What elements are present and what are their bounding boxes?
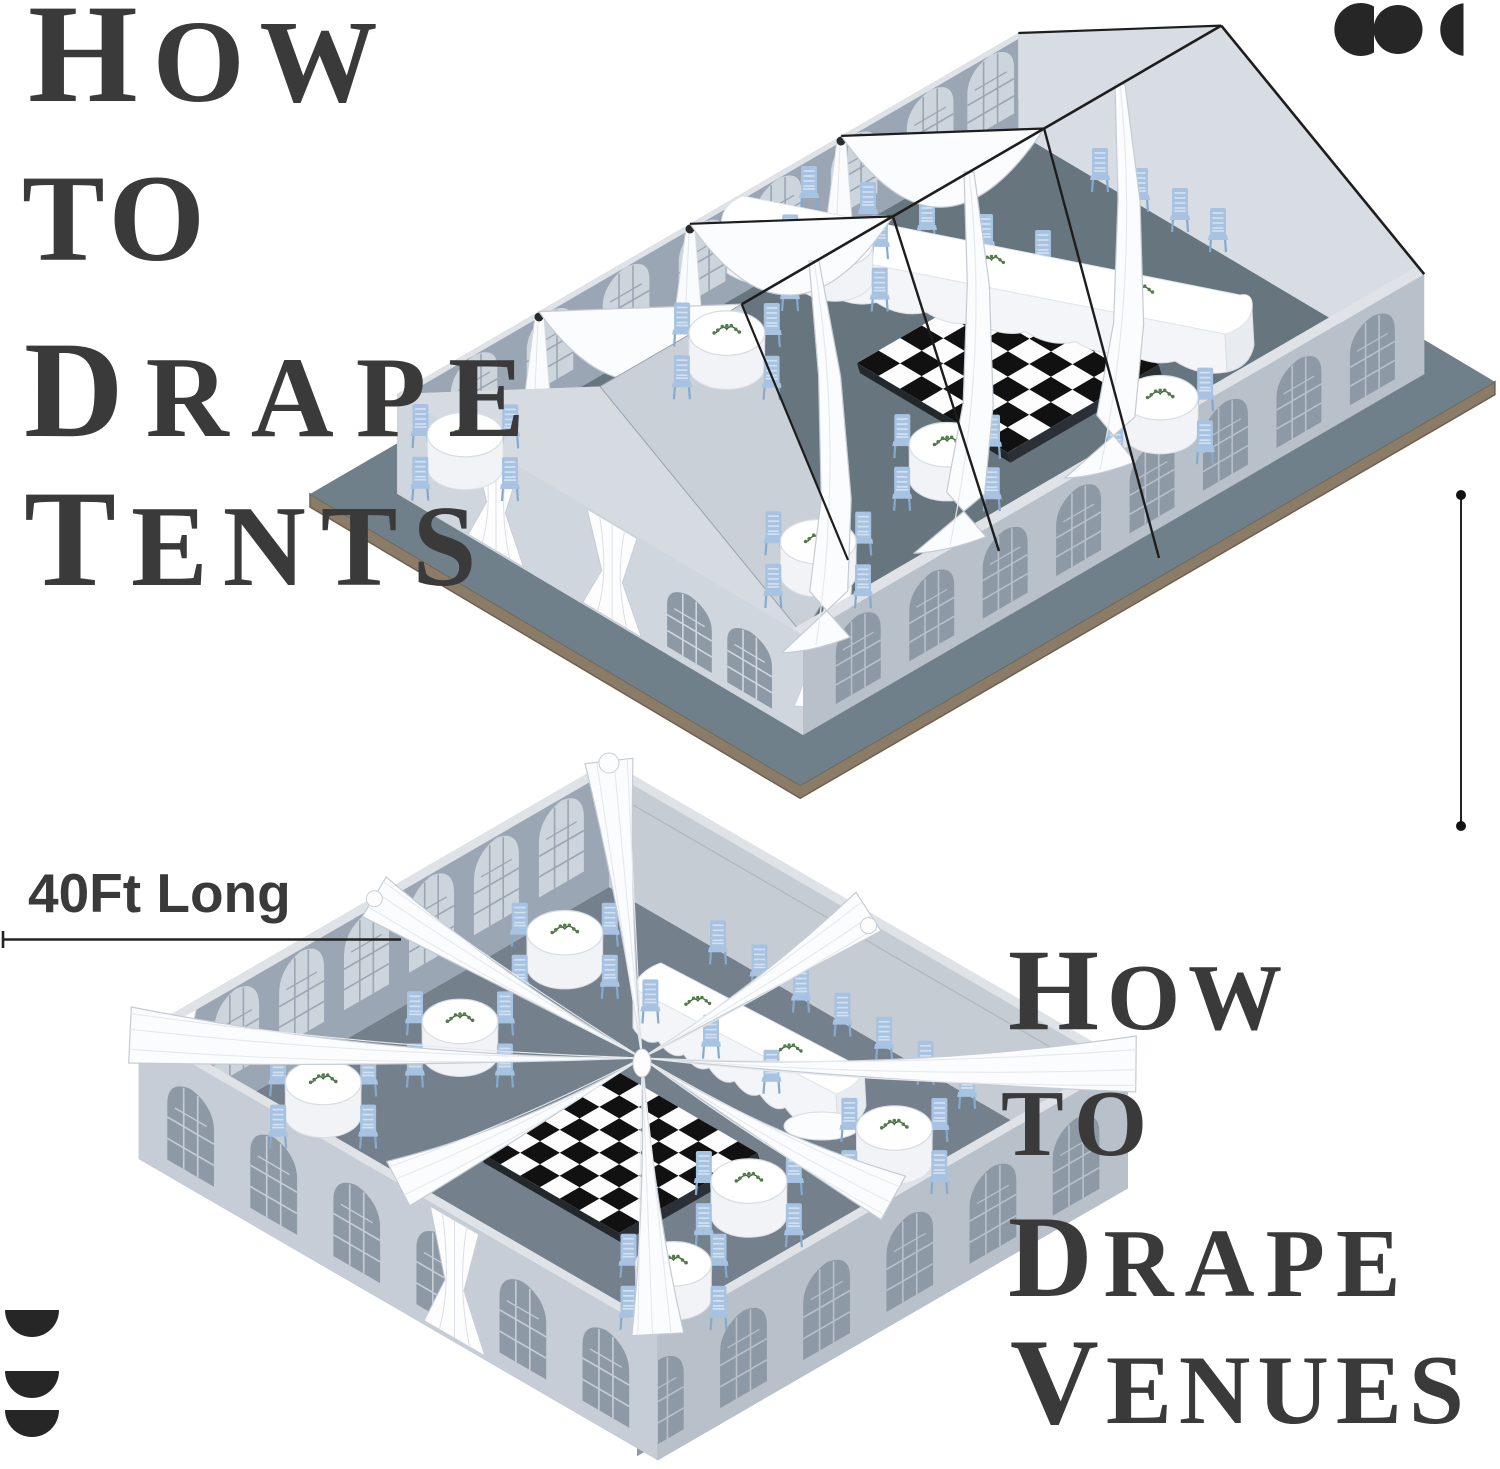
svg-text:40Ft Long: 40Ft Long <box>28 862 291 924</box>
svg-text:DRAPE: DRAPE <box>24 313 547 466</box>
svg-text:TO: TO <box>1001 1072 1159 1176</box>
svg-text:TENTS: TENTS <box>24 462 491 615</box>
svg-text:TO: TO <box>22 150 211 287</box>
svg-text:HOW: HOW <box>1008 926 1290 1055</box>
svg-text:DRAPE: DRAPE <box>1008 1193 1412 1322</box>
svg-text:HOW: HOW <box>28 0 392 132</box>
